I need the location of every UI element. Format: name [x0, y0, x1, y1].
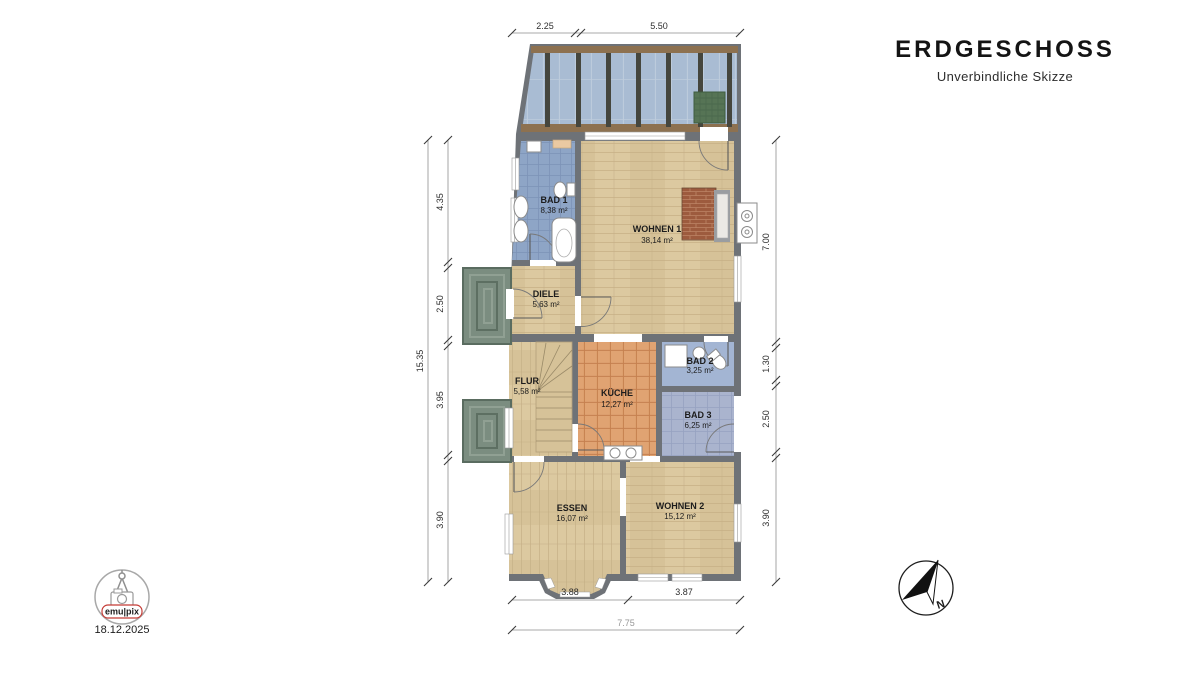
dim-left-c: 3.95 — [435, 391, 445, 409]
dim-top-a: 2.25 — [536, 21, 554, 31]
dim-left-b: 2.50 — [435, 295, 445, 313]
conservatory — [521, 46, 738, 132]
plant-icon — [694, 92, 725, 123]
chimney-vent-icon — [737, 203, 757, 243]
shelf-bad1 — [527, 141, 541, 152]
area-bad3: 6,25 m² — [684, 421, 711, 430]
dim-right-b: 1.30 — [761, 355, 771, 373]
label-diele: DIELE — [533, 289, 560, 299]
room-kueche — [578, 342, 656, 456]
staircase — [536, 342, 572, 452]
dim-right-c: 2.50 — [761, 410, 771, 428]
area-flur: 5,58 m² — [513, 387, 540, 396]
label-wohnen2: WOHNEN 2 — [656, 501, 705, 511]
area-kueche: 12,27 m² — [601, 400, 633, 409]
niche-bad1 — [553, 140, 571, 148]
label-bad1: BAD 1 — [540, 195, 567, 205]
dim-bottom-total: 7.75 — [617, 618, 635, 628]
conservatory-top-beam — [531, 46, 738, 53]
emulpix-logo: emu|pix 18.12.2025 — [94, 570, 149, 636]
label-kueche: KÜCHE — [601, 388, 633, 398]
fireplace-icon — [682, 188, 730, 242]
dim-right-d: 3.90 — [761, 509, 771, 527]
label-bad3: BAD 3 — [684, 410, 711, 420]
area-wohnen1: 38,14 m² — [641, 236, 673, 245]
label-flur: FLUR — [515, 376, 539, 386]
dim-right-a: 7.00 — [761, 233, 771, 251]
area-wohnen2: 15,12 m² — [664, 512, 696, 521]
kitchen-sink-icon — [604, 446, 642, 460]
page: ERDGESCHOSS Unverbindliche Skizze — [0, 0, 1200, 675]
porch-north — [463, 268, 511, 344]
dim-bottom-a: 3.88 — [561, 587, 579, 597]
dim-left-d: 3.90 — [435, 511, 445, 529]
date-label: 18.12.2025 — [94, 624, 149, 636]
label-bad2: BAD 2 — [686, 356, 713, 366]
area-essen: 16,07 m² — [556, 514, 588, 523]
floor-plan-canvas: BAD 1 8,38 m² WOHNEN 1 38,14 m² DIELE 5,… — [0, 0, 1200, 675]
area-bad1: 8,38 m² — [540, 206, 567, 215]
dim-top-b: 5.50 — [650, 21, 668, 31]
porch-south — [463, 400, 511, 462]
north-arrow-icon: N — [899, 560, 953, 615]
bathtub-icon — [552, 218, 576, 262]
label-essen: ESSEN — [557, 503, 588, 513]
label-wohnen1: WOHNEN 1 — [633, 224, 682, 234]
area-bad2: 3,25 m² — [686, 366, 713, 375]
area-diele: 5,63 m² — [532, 300, 559, 309]
dim-left-a: 4.35 — [435, 193, 445, 211]
north-label: N — [935, 598, 946, 612]
camera-icon — [111, 589, 133, 606]
dim-bottom-b: 3.87 — [675, 587, 693, 597]
dim-left-total: 15.35 — [415, 350, 425, 373]
logo-text: emu|pix — [105, 607, 139, 617]
